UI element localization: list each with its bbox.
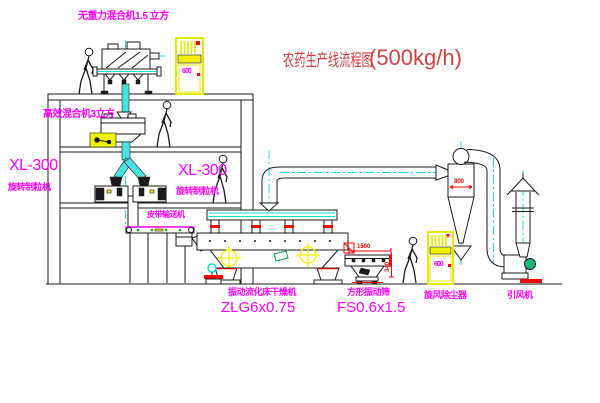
label-belt-conveyor: 皮带输送机: [147, 211, 185, 219]
label-cyclone: 旋风除尘器: [424, 291, 467, 300]
control-cabinet-1: [176, 38, 203, 94]
label-granulator-left-name: 旋转制粒机: [8, 183, 51, 192]
worker-figure-1: [79, 48, 93, 94]
y-splitter-duct: [114, 158, 146, 180]
dimension-sieve-length: 1500: [357, 244, 370, 250]
control-cabinet-2: [428, 232, 453, 284]
fluid-bed-dryer: [197, 203, 354, 284]
label-high-efficiency-mixer: 高效混合机3立方: [43, 110, 115, 120]
exhaust-duct: [262, 165, 448, 204]
label-sieve-model: FS0.6x1.5: [337, 300, 405, 315]
worker-figure-2: [157, 101, 171, 147]
granulator-right: [133, 177, 166, 202]
gravity-free-mixer: [93, 42, 165, 112]
dimension-sieve-outlet-height: 340: [385, 262, 391, 272]
worker-figure-4: [403, 237, 417, 283]
label-fan: 引风机: [507, 291, 533, 300]
cabinet-1-text: 600: [182, 68, 191, 75]
belt-conveyor: [126, 227, 194, 233]
induced-draft-fan: [502, 255, 542, 283]
page-title-capacity: (500kg/h): [369, 47, 462, 69]
label-sieve-name: 方形振动筛: [347, 288, 390, 297]
label-dryer-name: 振动流化床干燥机: [228, 288, 296, 297]
process-flow-diagram: 无重力混合机1.5 立方 农药生产线流程图 (500kg/h) 高效混合机3立方…: [0, 0, 600, 403]
dimension-cyclone-inlet: 800: [454, 179, 464, 185]
label-gravity-mixer: 无重力混合机1.5 立方: [78, 12, 169, 22]
cabinet-2-text: 600: [434, 261, 443, 268]
page-title: 农药生产线流程图: [283, 52, 373, 69]
label-granulator-left-model: XL-300: [9, 158, 58, 174]
label-granulator-right-name: 旋转制粒机: [176, 187, 219, 196]
exhaust-stack: [507, 173, 539, 257]
label-granulator-right-model: XL-300: [178, 163, 227, 179]
granulator-left: [95, 177, 128, 202]
label-dryer-model: ZLG6x0.75: [221, 300, 295, 315]
